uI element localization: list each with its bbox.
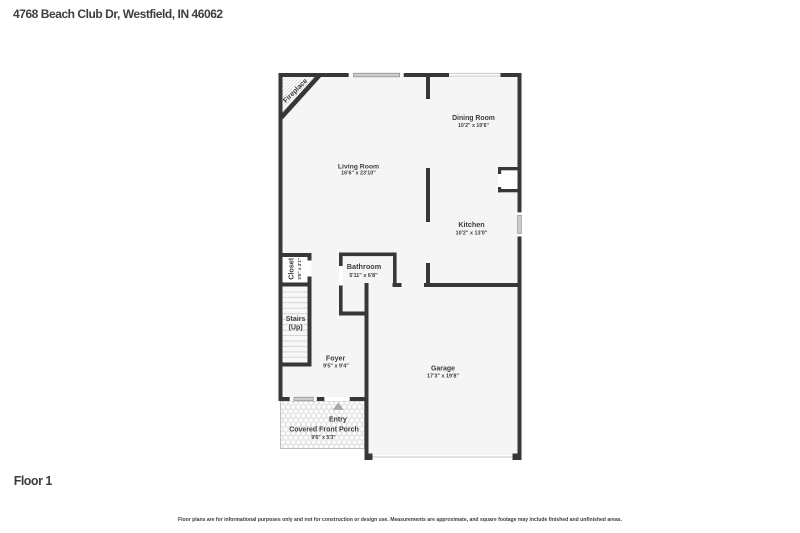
svg-text:Kitchen: Kitchen bbox=[458, 220, 484, 229]
svg-text:Stairs: Stairs bbox=[286, 316, 306, 323]
svg-text:(Up): (Up) bbox=[289, 324, 304, 332]
svg-text:5'11" x 6'8": 5'11" x 6'8" bbox=[349, 273, 378, 279]
svg-text:10'2" x 13'0": 10'2" x 13'0" bbox=[456, 230, 488, 236]
svg-text:Garage: Garage bbox=[431, 366, 455, 373]
svg-text:Entry: Entry bbox=[329, 416, 347, 423]
svg-text:10'2" x 10'6": 10'2" x 10'6" bbox=[458, 123, 490, 129]
svg-text:Foyer: Foyer bbox=[326, 355, 346, 363]
svg-text:9'6" x 5'3": 9'6" x 5'3" bbox=[311, 435, 336, 441]
svg-text:Bathroom: Bathroom bbox=[347, 262, 382, 271]
svg-text:Covered Front Porch: Covered Front Porch bbox=[289, 427, 359, 434]
svg-text:16'6" x 23'10": 16'6" x 23'10" bbox=[341, 171, 376, 177]
svg-text:3'0" x 3'1": 3'0" x 3'1" bbox=[297, 258, 302, 280]
svg-text:17'3" x 19'8": 17'3" x 19'8" bbox=[427, 374, 459, 380]
svg-text:9'5" x 9'4": 9'5" x 9'4" bbox=[323, 363, 349, 369]
svg-text:Dining Room: Dining Room bbox=[452, 115, 495, 122]
svg-text:Living Room: Living Room bbox=[338, 164, 379, 171]
svg-text:Closet: Closet bbox=[287, 257, 296, 280]
